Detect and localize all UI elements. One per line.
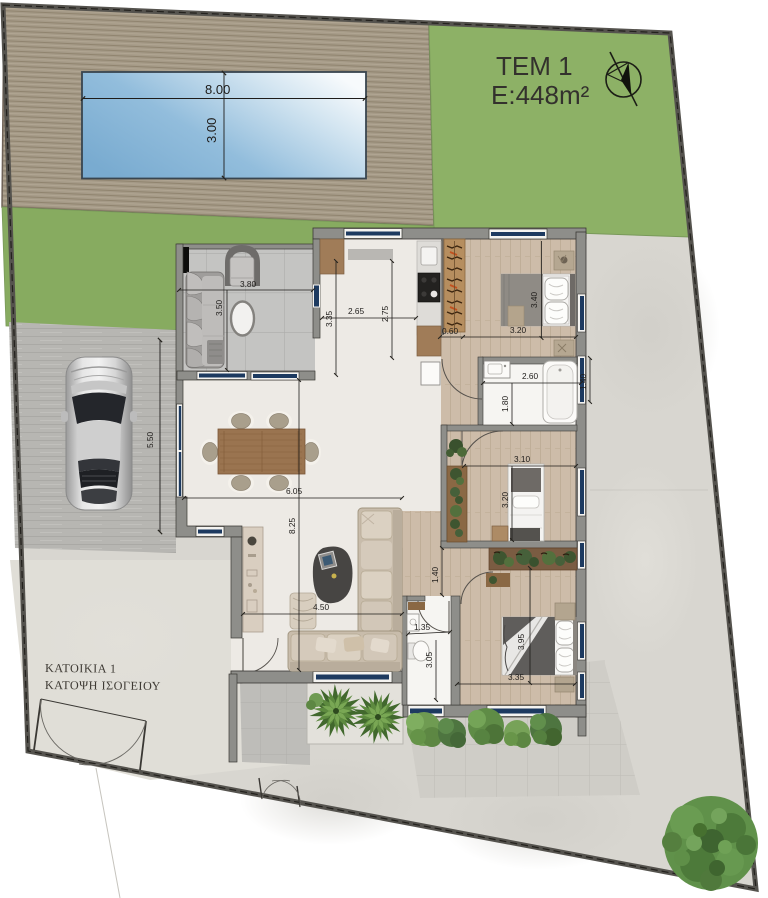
svg-text:3.50: 3.50 xyxy=(214,299,224,316)
svg-text:3.95: 3.95 xyxy=(516,633,526,650)
svg-text:1.35: 1.35 xyxy=(414,622,431,632)
svg-text:3.20: 3.20 xyxy=(500,491,510,508)
svg-text:3.35: 3.35 xyxy=(324,310,334,327)
svg-text:4.50: 4.50 xyxy=(313,602,330,612)
svg-text:3.10: 3.10 xyxy=(514,454,531,464)
svg-text:2.65: 2.65 xyxy=(348,306,365,316)
svg-text:E:448m²: E:448m² xyxy=(491,80,590,110)
svg-text:2.60: 2.60 xyxy=(522,371,539,381)
svg-text:8.00: 8.00 xyxy=(205,82,230,97)
svg-text:3.05: 3.05 xyxy=(424,651,434,668)
svg-text:ΚΑΤΟΨΗ ΙΣΟΓΕΙΟΥ: ΚΑΤΟΨΗ ΙΣΟΓΕΙΟΥ xyxy=(45,678,161,693)
svg-text:3.80: 3.80 xyxy=(240,279,257,289)
svg-text:ΚΑΤΟΙΚΙΑ 1: ΚΑΤΟΙΚΙΑ 1 xyxy=(45,661,117,676)
svg-text:3.40: 3.40 xyxy=(529,291,539,308)
svg-text:5.50: 5.50 xyxy=(145,431,155,448)
svg-text:3.00: 3.00 xyxy=(204,118,219,143)
svg-text:1.80: 1.80 xyxy=(500,395,510,412)
svg-text:ΤΕΜ 1: ΤΕΜ 1 xyxy=(496,51,573,81)
svg-text:3.20: 3.20 xyxy=(510,325,527,335)
svg-text:8.25: 8.25 xyxy=(287,517,297,534)
svg-text:3.35: 3.35 xyxy=(508,672,525,682)
svg-text:0.60: 0.60 xyxy=(442,326,459,336)
svg-text:6.05: 6.05 xyxy=(286,486,303,496)
svg-text:1.40: 1.40 xyxy=(430,566,440,583)
svg-text:1.40: 1.40 xyxy=(578,373,588,390)
svg-text:2.75: 2.75 xyxy=(380,305,390,322)
